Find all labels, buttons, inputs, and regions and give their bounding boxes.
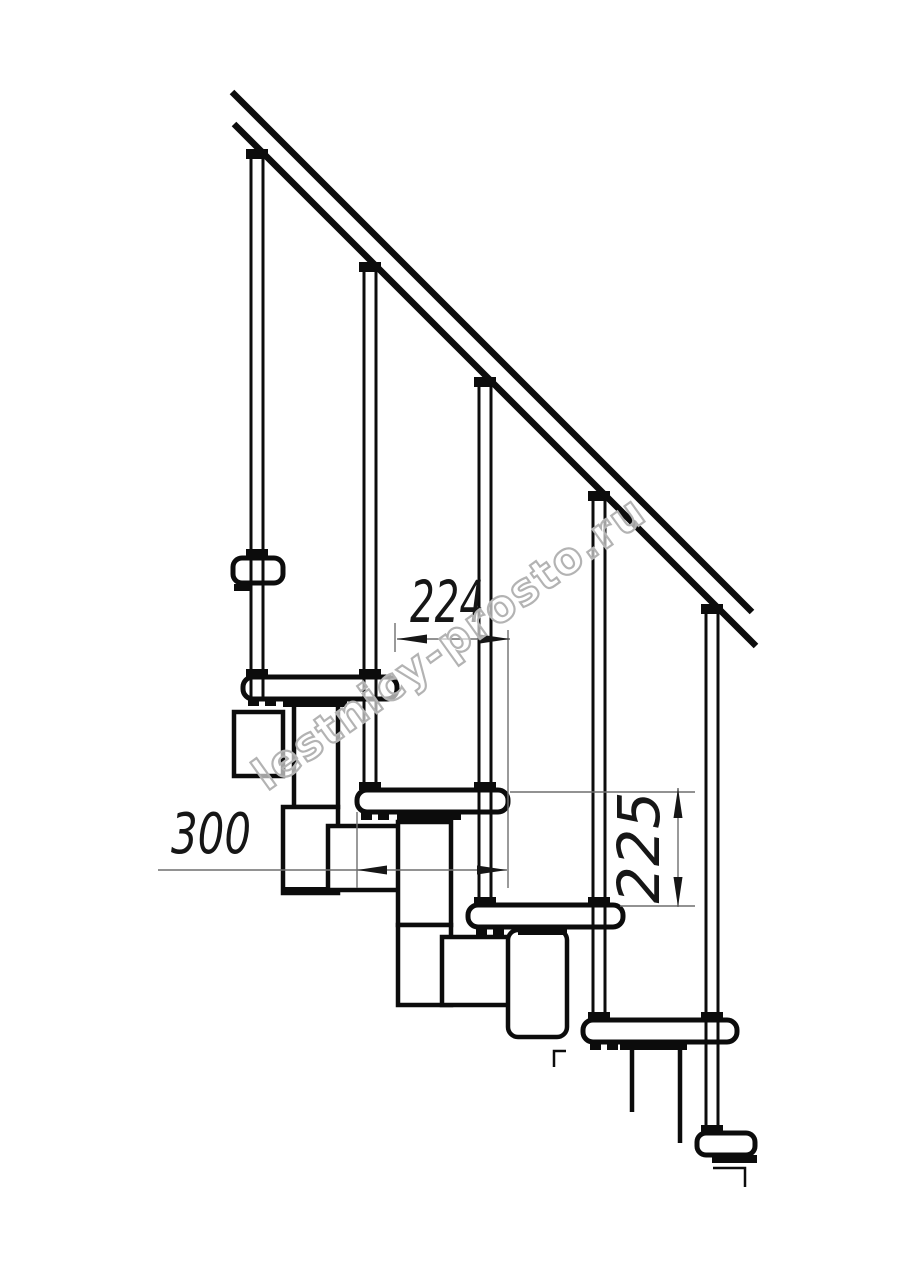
staircase-side-view-drawing: 224 300 225 lestnicy-prosto.ru bbox=[0, 0, 914, 1280]
tread-4 bbox=[583, 1020, 737, 1042]
baluster-1 bbox=[246, 149, 268, 700]
clamp-tab bbox=[248, 699, 259, 706]
module-top-plate bbox=[712, 1155, 757, 1163]
tread-0-partial bbox=[233, 558, 283, 583]
tread-3 bbox=[468, 905, 623, 927]
tread-2 bbox=[357, 790, 508, 812]
baluster-5 bbox=[701, 604, 723, 1133]
clamp-tab bbox=[476, 928, 487, 935]
dimension-riser-height: 225 bbox=[510, 788, 695, 907]
clamp-tab bbox=[590, 1043, 601, 1050]
baluster-collar bbox=[246, 669, 268, 677]
module-top-plate bbox=[518, 927, 567, 935]
baluster-foot bbox=[701, 1125, 723, 1133]
hidden-edge-line bbox=[554, 1051, 566, 1067]
clamp-tab bbox=[265, 699, 276, 706]
handrail-bottom-edge bbox=[234, 124, 756, 646]
baluster-foot bbox=[359, 782, 381, 790]
drawing-canvas: 224 300 225 lestnicy-prosto.ru bbox=[0, 0, 914, 1280]
module-box bbox=[398, 822, 451, 925]
baluster-foot bbox=[588, 1012, 610, 1020]
module-box bbox=[328, 826, 405, 890]
hidden-edge-line bbox=[713, 1168, 745, 1187]
module-chain-under-tread-3 bbox=[508, 930, 567, 1067]
dimension-label-225: 225 bbox=[605, 792, 673, 904]
clamp-tab bbox=[234, 584, 250, 591]
baluster-collar bbox=[701, 1012, 723, 1020]
baluster-foot bbox=[474, 897, 496, 905]
clamp-tab bbox=[378, 813, 389, 820]
module-chain-under-tread-4 bbox=[632, 1047, 680, 1143]
module-top-plate bbox=[397, 812, 461, 820]
arrow-down-icon bbox=[674, 877, 683, 907]
clamp-tab bbox=[607, 1043, 618, 1050]
baluster-collar bbox=[474, 782, 496, 790]
clamp-tab bbox=[361, 813, 372, 820]
baluster-collar bbox=[246, 549, 268, 558]
clamp-tab bbox=[493, 928, 504, 935]
module-top-plate bbox=[620, 1042, 687, 1050]
module-box bbox=[508, 930, 567, 1037]
handrail bbox=[232, 92, 756, 646]
dimension-label-300: 300 bbox=[171, 802, 251, 867]
tread-5-partial bbox=[697, 1133, 755, 1155]
